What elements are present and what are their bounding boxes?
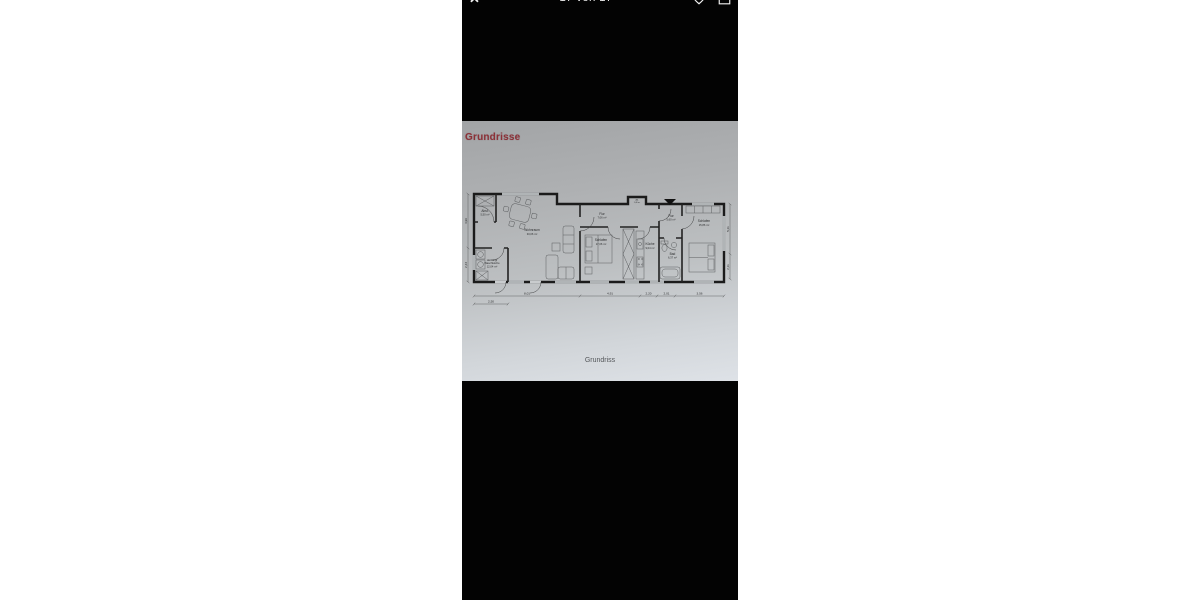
svg-text:Küche: Küche: [645, 242, 654, 246]
svg-text:12,04 m²: 12,04 m²: [487, 264, 498, 268]
document-page: Grundrisse: [462, 121, 738, 381]
floor-plan: Abst. 5,50 m² Wohnraum 33,06 m² Heizung/…: [462, 121, 738, 381]
svg-text:17,06 m²: 17,06 m²: [596, 242, 607, 246]
svg-text:33,06 m²: 33,06 m²: [527, 232, 538, 236]
svg-text:15,86 m²: 15,86 m²: [699, 223, 710, 227]
svg-text:5,11: 5,11: [726, 226, 730, 232]
dimension-lines: [467, 193, 732, 306]
label-flur-rechts: Flur 5,60 m²: [666, 214, 675, 222]
svg-text:9,04 m²: 9,04 m²: [645, 246, 654, 250]
heart-icon[interactable]: [692, 0, 706, 5]
svg-text:8,01: 8,01: [524, 291, 530, 295]
svg-text:3,56: 3,56: [696, 291, 702, 295]
svg-text:2,11: 2,11: [726, 264, 730, 270]
label-schlafen-1: Schlafen 17,06 m²: [595, 238, 608, 246]
svg-text:2,43: 2,43: [464, 262, 468, 268]
dining-set: [500, 194, 540, 231]
svg-text:Flur: Flur: [599, 212, 605, 216]
label-wohnraum: Wohnraum 33,06 m²: [524, 228, 540, 236]
document-caption: Grundriss: [462, 357, 738, 364]
svg-text:5,60 m²: 5,60 m²: [666, 218, 675, 222]
label-kueche: Küche 9,04 m²: [645, 242, 654, 250]
close-icon[interactable]: ✕: [469, 0, 480, 5]
svg-text:Flur: Flur: [668, 214, 674, 218]
phone-screenshot: ✕ 17 von 17 Grundrisse: [462, 0, 738, 600]
viewer-toolbar: ✕ 17 von 17: [462, 0, 738, 9]
sofa-group: [546, 226, 574, 279]
wardrobe-schlafen2: [686, 206, 720, 213]
svg-text:4,96: 4,96: [464, 218, 468, 224]
svg-text:2,50: 2,50: [488, 299, 494, 303]
svg-text:Schlafen: Schlafen: [698, 219, 711, 223]
svg-text:6,37 m²: 6,37 m²: [668, 256, 677, 260]
svg-text:Abst.: Abst.: [481, 209, 488, 213]
screenshot-canvas: ✕ 17 von 17 Grundrisse: [0, 0, 1200, 600]
svg-text:5,50 m²: 5,50 m²: [480, 213, 489, 217]
svg-text:4,91: 4,91: [607, 291, 613, 295]
svg-text:Bad: Bad: [670, 252, 676, 256]
label-flur-mitte: Flur 7,06 m²: [597, 212, 606, 220]
wardrobe-hatched: [623, 229, 634, 279]
svg-text:2,01: 2,01: [663, 291, 669, 295]
page-indicator: 17 von 17: [559, 0, 612, 4]
label-schlafen-2: Schlafen 15,86 m²: [698, 219, 711, 227]
label-heizung-waschkueche: Heizung/ Waschküche 12,04 m²: [484, 258, 500, 268]
bed-schlafen2: [689, 243, 715, 272]
storage-shelf: [476, 196, 494, 206]
svg-text:Wohnraum: Wohnraum: [524, 228, 540, 232]
svg-text:2,20: 2,20: [645, 291, 651, 295]
label-ab-klein: Ab. 1,40 m²: [634, 199, 641, 204]
label-bad: Bad 6,37 m²: [668, 252, 677, 260]
svg-text:7,06 m²: 7,06 m²: [597, 216, 606, 220]
bath-fixtures: [660, 241, 680, 279]
share-icon[interactable]: [718, 0, 731, 5]
interior-walls: [474, 194, 682, 282]
door-arcs: [478, 206, 694, 293]
label-abst: Abst. 5,50 m²: [480, 209, 489, 217]
svg-text:Schlafen: Schlafen: [595, 238, 608, 242]
dimension-labels: 8,01 4,91 2,20 2,01 3,56 2,50 4,96 2,43 …: [464, 218, 730, 304]
svg-text:1,40 m²: 1,40 m²: [634, 201, 641, 204]
